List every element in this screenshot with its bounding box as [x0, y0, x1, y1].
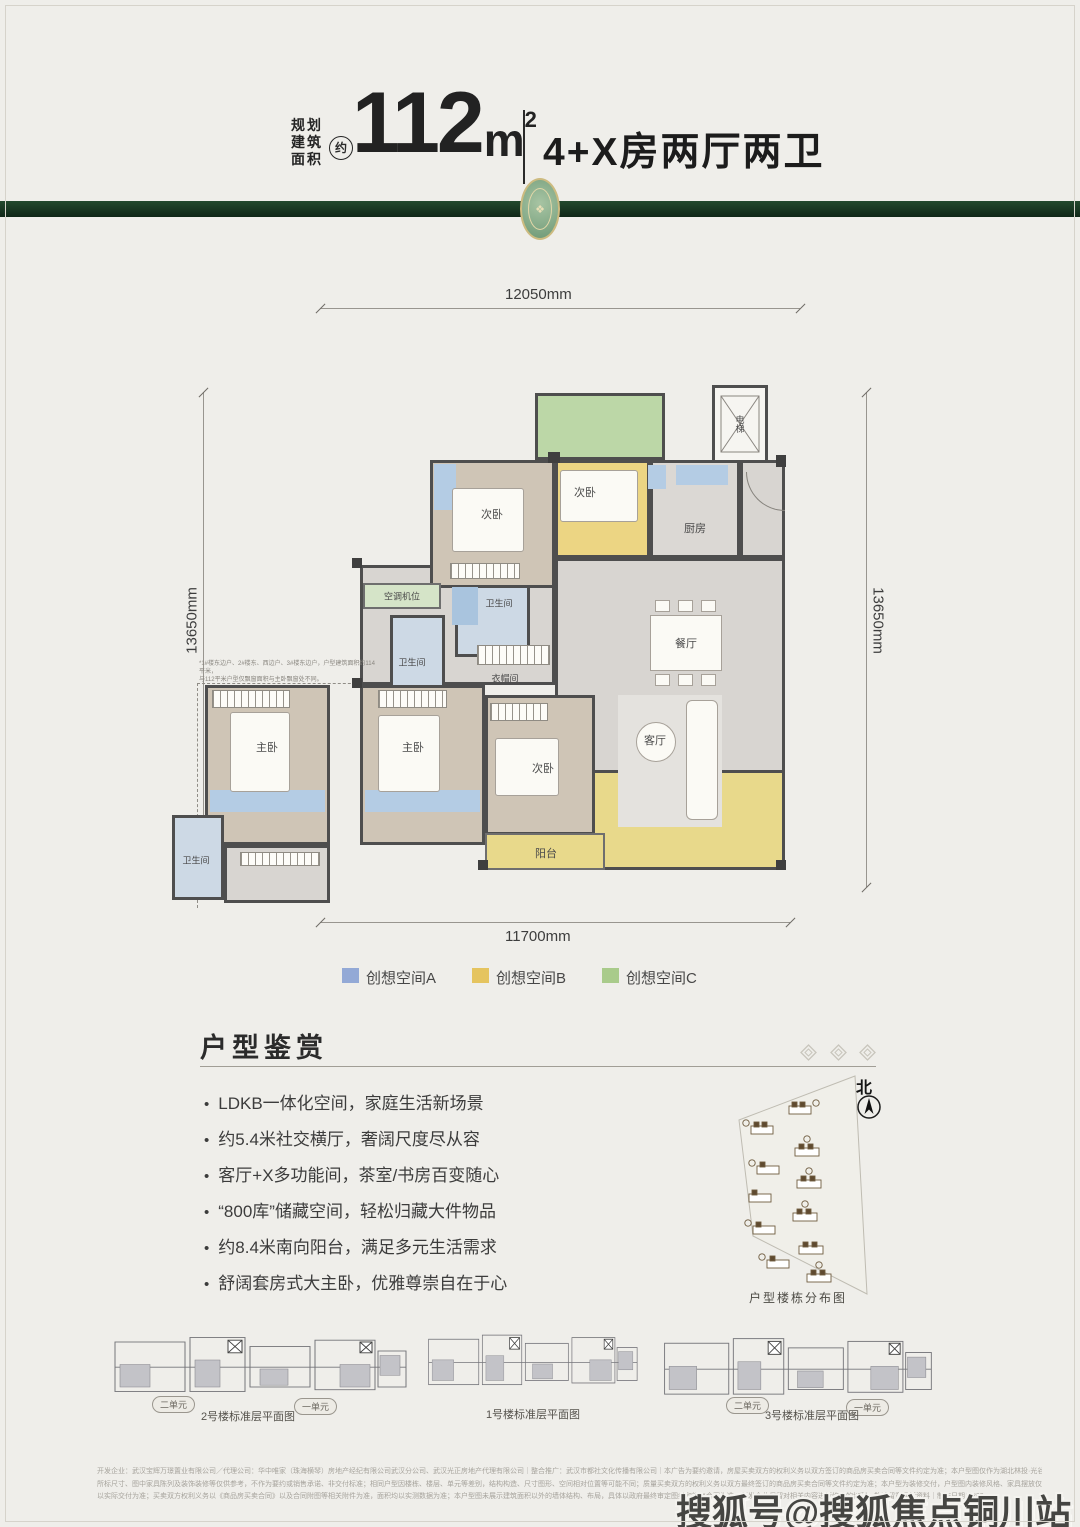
wall-column [776, 860, 786, 870]
legend-label-c: 创想空间C [626, 967, 697, 988]
wardrobe-graphic [490, 703, 548, 721]
room-label-elevator: 电梯 [734, 415, 747, 433]
floorplan-poster: 规划 建筑 面积 约 112 m 2 4+X房两厅两卫 ❖ 12050mm 13… [0, 0, 1080, 1527]
feature-item: 约5.4米社交横厅，奢阔尺度尽从容 [204, 1129, 507, 1151]
room-flex-space-c [535, 393, 665, 460]
wall-column [352, 558, 362, 568]
area-exponent: 2 [525, 107, 537, 133]
feature-item: “800库”储藏空间，轻松归藏大件物品 [204, 1201, 507, 1223]
plan-footnote: *1#楼东边户、2#楼东、西边户、3#楼东边户，户型建筑面积约114平米， 与1… [199, 660, 379, 684]
room-label-bath-upper: 卫生间 [485, 597, 512, 610]
feature-item: LDKB一体化空间，家庭生活新场景 [204, 1093, 507, 1115]
bed-graphic [560, 470, 638, 522]
wardrobe-graphic [212, 690, 290, 708]
brand-medallion-icon: ❖ [520, 178, 560, 240]
building-thumb-1 [425, 1331, 640, 1397]
chair-graphic [655, 674, 670, 686]
area-label: 规划 建筑 面积 [291, 117, 323, 168]
disclaimer-line: 开发企业：武汉宝辉万璟置业有限公司／代理公司：华中唯家（珠海横琴）房地产经纪有限… [97, 1466, 1042, 1479]
kitchen-counter-blue [676, 465, 728, 485]
room-label-bedroom-lower: 次卧 [532, 760, 554, 776]
thumb-caption-2: 2号楼标准层平面图 [158, 1408, 338, 1424]
thumb-caption-1: 1号楼标准层平面图 [443, 1406, 623, 1422]
bay-window-blue [210, 790, 325, 812]
thumb-caption-3: 3号楼标准层平面图 [722, 1407, 902, 1423]
room-label-master-alt: 主卧 [256, 739, 278, 755]
compass-icon [856, 1094, 882, 1120]
section-rule [200, 1066, 876, 1067]
room-label-kitchen: 厨房 [684, 520, 706, 536]
sofa-graphic [686, 700, 718, 820]
section-title: 户型鉴赏 [200, 1026, 328, 1065]
bay-window-blue [365, 790, 480, 812]
area-value: 112 [352, 84, 482, 163]
legend-swatch-c [602, 968, 619, 983]
room-label-ac: 空调机位 [384, 590, 420, 603]
wall-column [776, 455, 786, 467]
watermark: 搜狐号@搜狐焦点铜川站 [676, 1484, 1071, 1527]
wall-column [478, 860, 488, 870]
chair-graphic [678, 600, 693, 612]
dim-bottom: 11700mm [505, 928, 571, 945]
knot-icon [859, 1044, 876, 1061]
room-label-balcony: 阳台 [535, 845, 557, 861]
shower-blue [452, 587, 478, 625]
room-label-bath-lower: 卫生间 [398, 656, 425, 669]
approx-badge: 约 [329, 136, 353, 160]
chair-graphic [678, 674, 693, 686]
area-figure: 112 m 2 [352, 84, 537, 163]
wardrobe-graphic [450, 563, 520, 579]
legend-label-a: 创想空间A [366, 967, 436, 988]
feature-item: 约8.4米南向阳台，满足多元生活需求 [204, 1237, 507, 1259]
legend-swatch-a [342, 968, 359, 983]
wardrobe-graphic [477, 645, 550, 665]
room-label-cloakroom: 衣帽间 [491, 672, 518, 685]
layout-title: 4+X房两厅两卫 [543, 121, 824, 177]
header-divider [523, 110, 525, 184]
feature-list: LDKB一体化空间，家庭生活新场景 约5.4米社交横厅，奢阔尺度尽从容 客厅+X… [204, 1093, 507, 1295]
room-label-bath-alt: 卫生间 [182, 854, 209, 867]
knot-icon [830, 1044, 847, 1061]
room-label-living: 客厅 [644, 732, 666, 748]
room-label-dining: 餐厅 [675, 635, 697, 651]
dim-line-right [866, 392, 867, 887]
chair-graphic [701, 600, 716, 612]
chair-graphic [655, 600, 670, 612]
chair-graphic [701, 674, 716, 686]
room-label-bedroom-yellow: 次卧 [574, 484, 596, 500]
dim-line-left [203, 392, 204, 887]
room-label-bedroom-left: 次卧 [481, 506, 503, 522]
building-thumb-2 [110, 1333, 410, 1405]
area-unit: m [484, 117, 525, 163]
dim-right: 13650mm [870, 581, 887, 661]
legend-swatch-b [472, 968, 489, 983]
dim-line-top [320, 308, 800, 309]
kitchen-sink-blue [648, 465, 666, 489]
feature-item: 客厅+X多功能间，茶室/书房百变随心 [204, 1165, 507, 1187]
dim-left: 13650mm [184, 581, 201, 661]
feature-item: 舒阔套房式大主卧，优雅尊崇自在于心 [204, 1273, 507, 1295]
wardrobe-graphic [240, 852, 320, 866]
medallion-knot-icon: ❖ [528, 188, 552, 230]
dim-top: 12050mm [505, 286, 572, 303]
room-label-master: 主卧 [402, 739, 424, 755]
building-thumb-3 [660, 1334, 935, 1408]
dim-line-bottom [320, 922, 790, 923]
wall-column [548, 452, 560, 463]
knot-icon [800, 1044, 817, 1061]
legend-label-b: 创想空间B [496, 967, 566, 988]
wardrobe-graphic [378, 690, 447, 708]
